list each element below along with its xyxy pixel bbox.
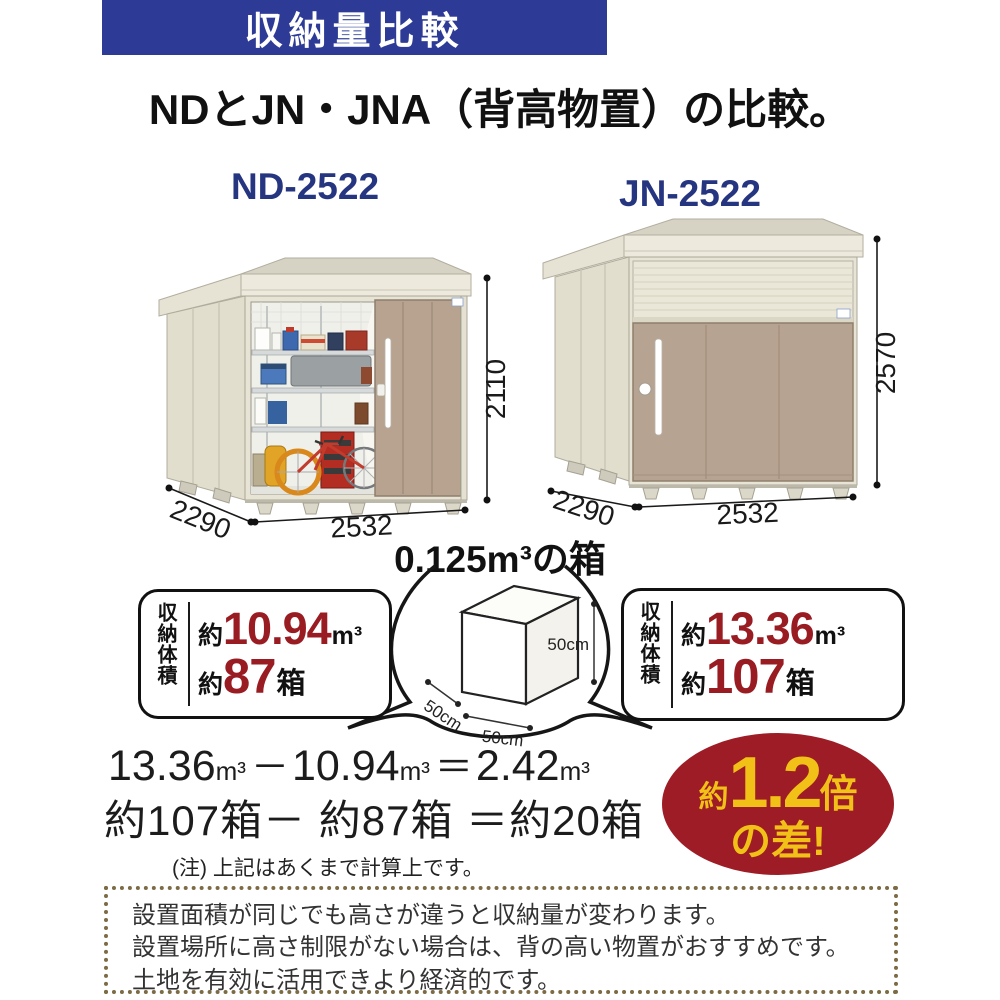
stat-divider xyxy=(188,602,190,706)
about-prefix: 約 xyxy=(681,623,706,649)
shed-illustration-nd: 2110 2532 2290 xyxy=(115,238,520,538)
shed-jn-side-wall xyxy=(555,257,629,481)
about-prefix: 約 xyxy=(681,672,706,698)
volume-value: 13.36 xyxy=(706,605,814,652)
shed-nd-side-wall xyxy=(167,296,245,500)
cube-dim-depth: 50cm xyxy=(420,679,465,735)
stat-box-nd: 収納体積 約 10.94 m³ 約 87 箱 xyxy=(138,589,392,719)
brand-sticker xyxy=(837,309,850,318)
badge-line1: 約 1.2 倍 xyxy=(698,747,857,819)
shed-nd-door xyxy=(375,300,461,496)
volume-unit: m³ xyxy=(815,623,846,649)
cube-dim-width: 50cm xyxy=(463,713,533,750)
stat-label-vertical: 収納体積 xyxy=(141,592,182,716)
footer-note-box: 設置面積が同じでも高さが違うと収納量が変わります。 設置場所に高さ制限がない場合… xyxy=(104,886,898,994)
badge-about: 約 xyxy=(698,783,728,813)
eq-unit: m³ xyxy=(560,756,590,787)
boxes-unit: 箱 xyxy=(786,669,815,699)
eq-value: 13.36 xyxy=(108,742,216,791)
stat-divider xyxy=(671,601,673,708)
cube-illustration: 50cm 50cm 50cm xyxy=(412,570,618,750)
shed-nd-interior xyxy=(251,302,384,494)
dimension-height-2570: 2570 xyxy=(870,236,901,489)
shed-illustration-jn: 2570 2532 2290 xyxy=(505,205,905,540)
stat-volume-row: 約 13.36 m³ xyxy=(681,605,902,652)
shed-nd-right-jamb xyxy=(461,296,467,500)
volume-unit: m³ xyxy=(332,623,363,649)
section-banner: 収納量比較 xyxy=(102,0,607,55)
volume-value: 10.94 xyxy=(223,605,331,652)
svg-text:2532: 2532 xyxy=(716,497,780,531)
svg-text:2290: 2290 xyxy=(550,484,619,533)
stat-label-vertical: 収納体積 xyxy=(624,591,665,718)
calculation-note: (注) 上記はあくまで計算上です。 xyxy=(172,852,484,882)
dimension-width-2532: 2532 xyxy=(636,494,857,531)
shed-jn-shutter xyxy=(633,261,853,323)
banner-label: 収納量比較 xyxy=(244,0,464,55)
footer-line: 土地を有効に活用できより経済的です。 xyxy=(132,965,894,997)
difference-badge: 約 1.2 倍 の差! xyxy=(662,733,894,875)
boxes-unit: 箱 xyxy=(277,669,306,699)
about-prefix: 約 xyxy=(198,672,223,698)
svg-text:50cm: 50cm xyxy=(481,727,525,750)
cube-front-face xyxy=(462,612,526,704)
stat-boxes-row: 約 87 箱 xyxy=(198,652,389,703)
minus-sign: － xyxy=(251,736,289,791)
svg-text:50cm: 50cm xyxy=(547,635,589,654)
model-label-nd: ND-2522 xyxy=(160,166,450,208)
door-handle xyxy=(655,339,662,435)
door-knob xyxy=(639,383,651,395)
eq-unit: m³ xyxy=(400,756,430,787)
footer-line: 設置場所に高さ制限がない場合は、背の高い物置がおすすめです。 xyxy=(132,932,894,964)
badge-times: 倍 xyxy=(820,776,858,814)
boxes-value: 87 xyxy=(223,652,276,703)
door-handle xyxy=(385,338,391,428)
shed-jn-door xyxy=(633,323,853,481)
badge-line2: の差! xyxy=(730,821,826,862)
footer-line: 設置面積が同じでも高さが違うと収納量が変わります。 xyxy=(132,900,894,932)
page-title: NDとJN・JNA（背高物置）の比較。 xyxy=(0,76,1000,137)
svg-text:2570: 2570 xyxy=(870,332,901,394)
boxes-value: 107 xyxy=(706,652,785,703)
stat-boxes-row: 約 107 箱 xyxy=(681,652,902,703)
boxes-equation: 約107箱－ 約87箱 ＝約20箱 xyxy=(104,787,644,848)
door-lock xyxy=(377,384,385,396)
storage-comparison-infographic: 収納量比較 NDとJN・JNA（背高物置）の比較。 ND-2522 JN-252… xyxy=(0,0,1000,1000)
badge-value: 1.2 xyxy=(728,747,819,819)
dimension-depth-2290: 2290 xyxy=(548,484,639,533)
stat-volume-row: 約 10.94 m³ xyxy=(198,605,389,652)
eq-value: 10.94 xyxy=(292,742,400,791)
about-prefix: 約 xyxy=(198,623,223,649)
stat-box-jn: 収納体積 約 13.36 m³ 約 107 箱 xyxy=(621,588,905,721)
brand-sticker xyxy=(452,298,463,306)
eq-unit: m³ xyxy=(216,756,246,787)
